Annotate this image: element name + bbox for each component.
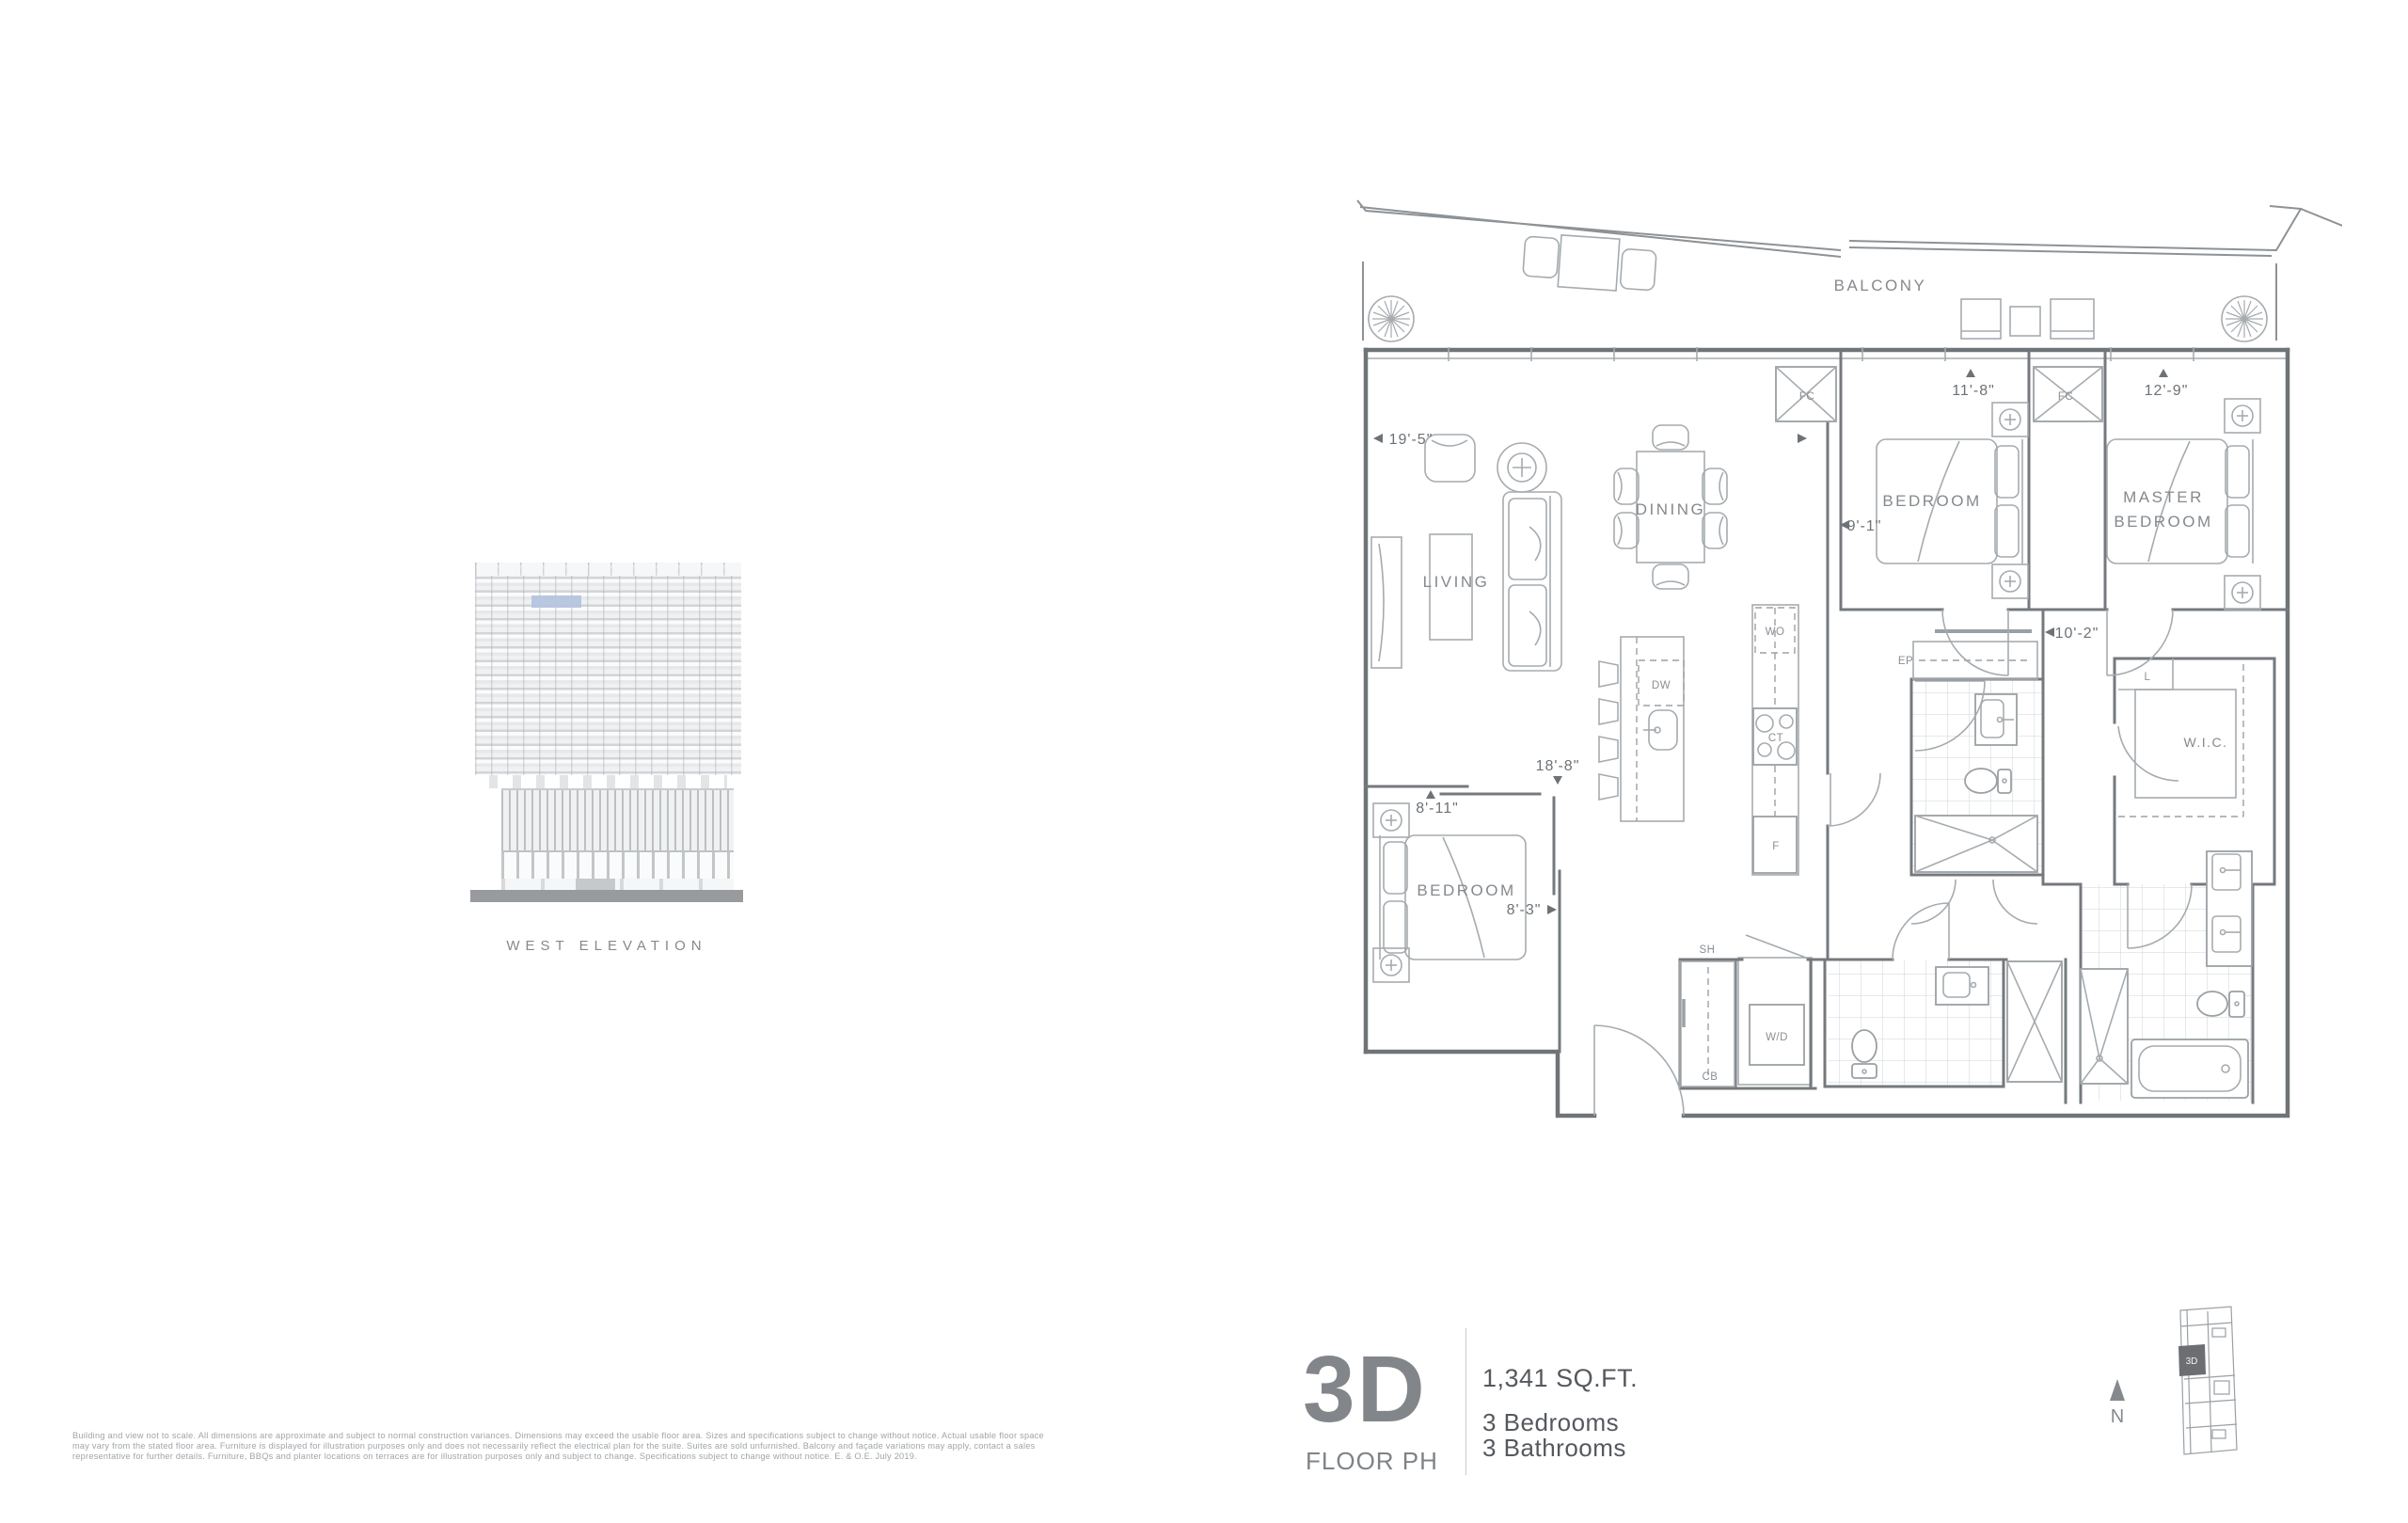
dim-living-length: 18'-8" [1536, 758, 1580, 774]
elevation-podium-band [501, 850, 734, 880]
dim-bed2-depth: 9'-1" [1847, 518, 1882, 534]
info-divider [1465, 1328, 1466, 1475]
label-cb: CB [1703, 1071, 1719, 1083]
living-furniture [1371, 435, 1561, 671]
closet-fc1: FC [1776, 367, 1836, 421]
dim-bed2-width: 11'-8" [1952, 383, 1995, 399]
room-label-bedroom-bottom: BEDROOM [1417, 881, 1515, 899]
unit-area: 1,341 SQ.FT. [1482, 1364, 1638, 1393]
elevation-tower [475, 563, 741, 775]
elevation-ground [470, 890, 743, 902]
north-label: N [2111, 1406, 2124, 1427]
planter-icon [2222, 296, 2267, 341]
room-label-master-2: BEDROOM [2114, 513, 2212, 531]
dim-bed3-width: 8'-11" [1416, 801, 1459, 817]
unit-code: 3D [1303, 1336, 1427, 1444]
unit-bathrooms: 3 Bathrooms [1482, 1434, 1626, 1463]
floorplan-sheet: WEST ELEVATION [0, 0, 2408, 1523]
room-label-bedroom-top: BEDROOM [1882, 492, 1981, 510]
elevation-podium [501, 788, 734, 852]
keyplan-unit-label: 3D [2186, 1356, 2198, 1367]
room-label-living: LIVING [1423, 573, 1490, 591]
elevation-caption: WEST ELEVATION [466, 938, 748, 954]
planter-icon [1369, 296, 1414, 341]
elevation-transition [489, 775, 727, 788]
kitchen: DW WO CT F [1599, 605, 1798, 875]
label-l: L [2145, 672, 2151, 683]
wic: L W.I.C. [2118, 658, 2243, 817]
room-label-balcony: BALCONY [1834, 277, 1927, 294]
label-wo: WO [1766, 627, 1785, 638]
closet-fc2: FC [2034, 367, 2102, 421]
label-sh: SH [1700, 944, 1716, 956]
dim-living-width: 19'-5" [1389, 432, 1434, 448]
closet-sh: SH CB [1680, 944, 1735, 1087]
label-dw: DW [1652, 680, 1671, 691]
elevation-crown [475, 563, 741, 576]
dim-master-width: 12'-9" [2145, 383, 2189, 399]
room-label-wic: W.I.C. [2183, 735, 2227, 750]
closet-ep: EP [1898, 642, 2037, 679]
label-ep: EP [1898, 656, 1913, 667]
elevation-unit-highlight [531, 595, 581, 608]
label-wd: W/D [1766, 1032, 1788, 1043]
bedroom-bottom: BEDROOM [1373, 803, 1526, 982]
laundry: W/D [1746, 935, 1806, 1065]
unit-floor: FLOOR PH [1306, 1447, 1438, 1476]
label-ct: CT [1768, 733, 1783, 744]
keyplan-building: 3D [2178, 1307, 2237, 1454]
room-label-master-1: MASTER [2123, 488, 2204, 506]
disclaimer-line-1: Building and view not to scale. All dime… [72, 1431, 1044, 1440]
dim-master-depth: 10'-2" [2055, 626, 2099, 642]
north-arrow-icon [2110, 1379, 2125, 1401]
label-fc1: FC [1799, 391, 1814, 403]
dim-bed3-depth: 8'-3" [1507, 902, 1542, 918]
room-label-dining: DINING [1636, 500, 1706, 518]
disclaimer-line-3: representative for further details. Furn… [72, 1452, 917, 1461]
bedroom-top: BEDROOM [1877, 403, 2028, 598]
balcony-lounge-set [1961, 299, 2094, 339]
disclaimer-line-2: may vary from the stated floor area. Fur… [72, 1441, 1035, 1451]
label-fc2: FC [2058, 391, 2073, 403]
label-f: F [1772, 841, 1780, 852]
master-bedroom: MASTER BEDROOM [2107, 399, 2260, 610]
balcony: BALCONY [1357, 200, 2342, 341]
keyplan: N 3D [2098, 1298, 2257, 1496]
floor-plan: BALCONY [1354, 179, 2342, 1129]
balcony-table-set [1522, 232, 1656, 293]
